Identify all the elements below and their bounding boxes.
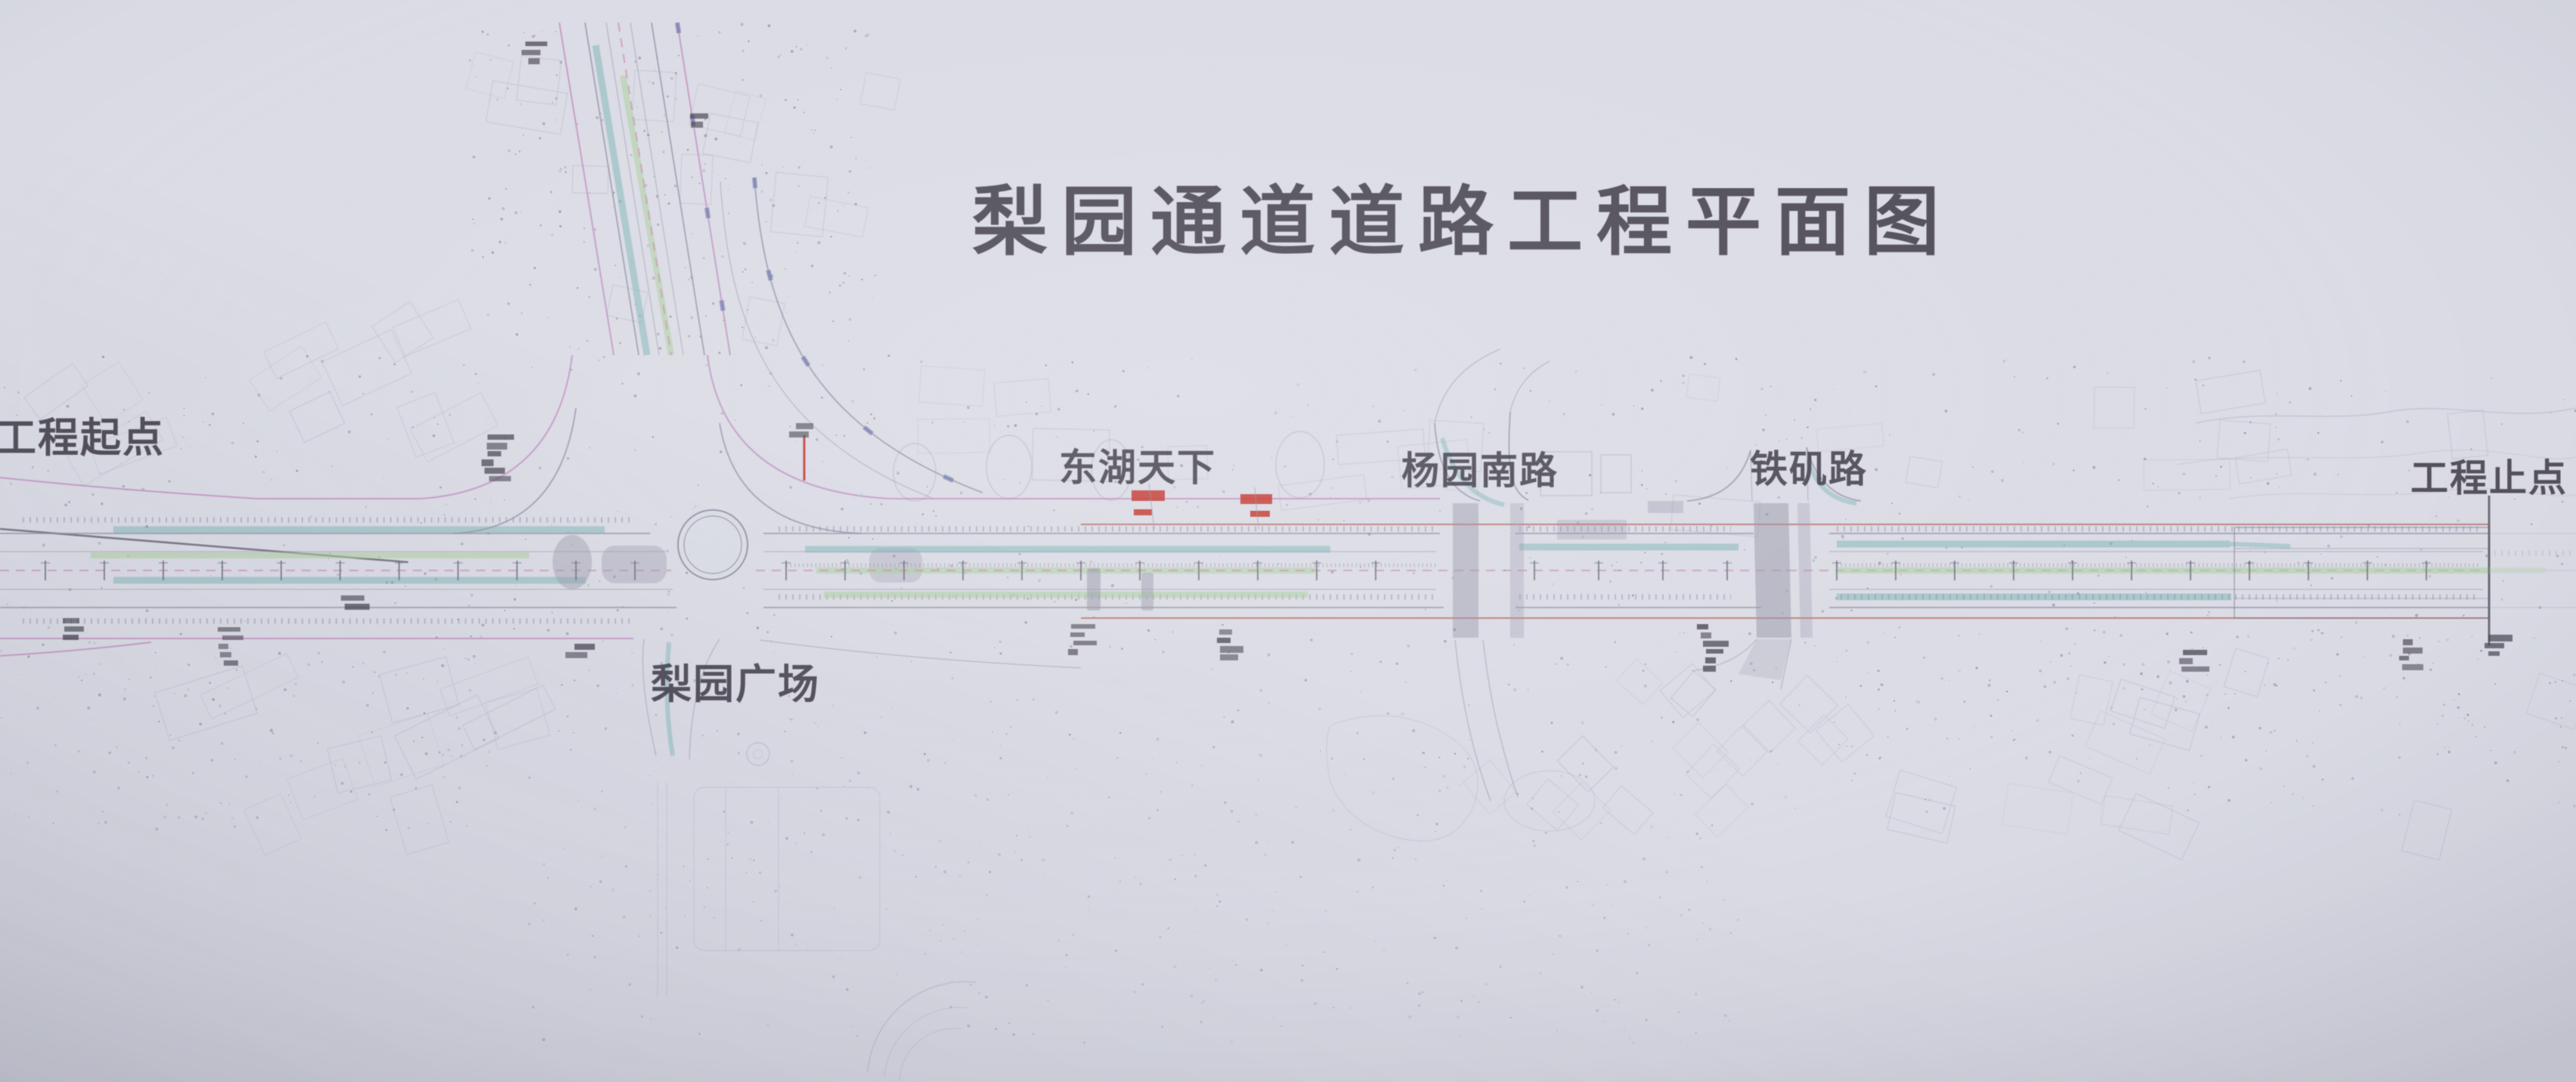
plan-photo: 梨园通道道路工程平面图 工程起点 东湖天下 杨园南路 铁矶路 工程止点 梨园广场 [0, 0, 2576, 1082]
plan-drawing: 梨园通道道路工程平面图 工程起点 东湖天下 杨园南路 铁矶路 工程止点 梨园广场 [0, 0, 2576, 1082]
